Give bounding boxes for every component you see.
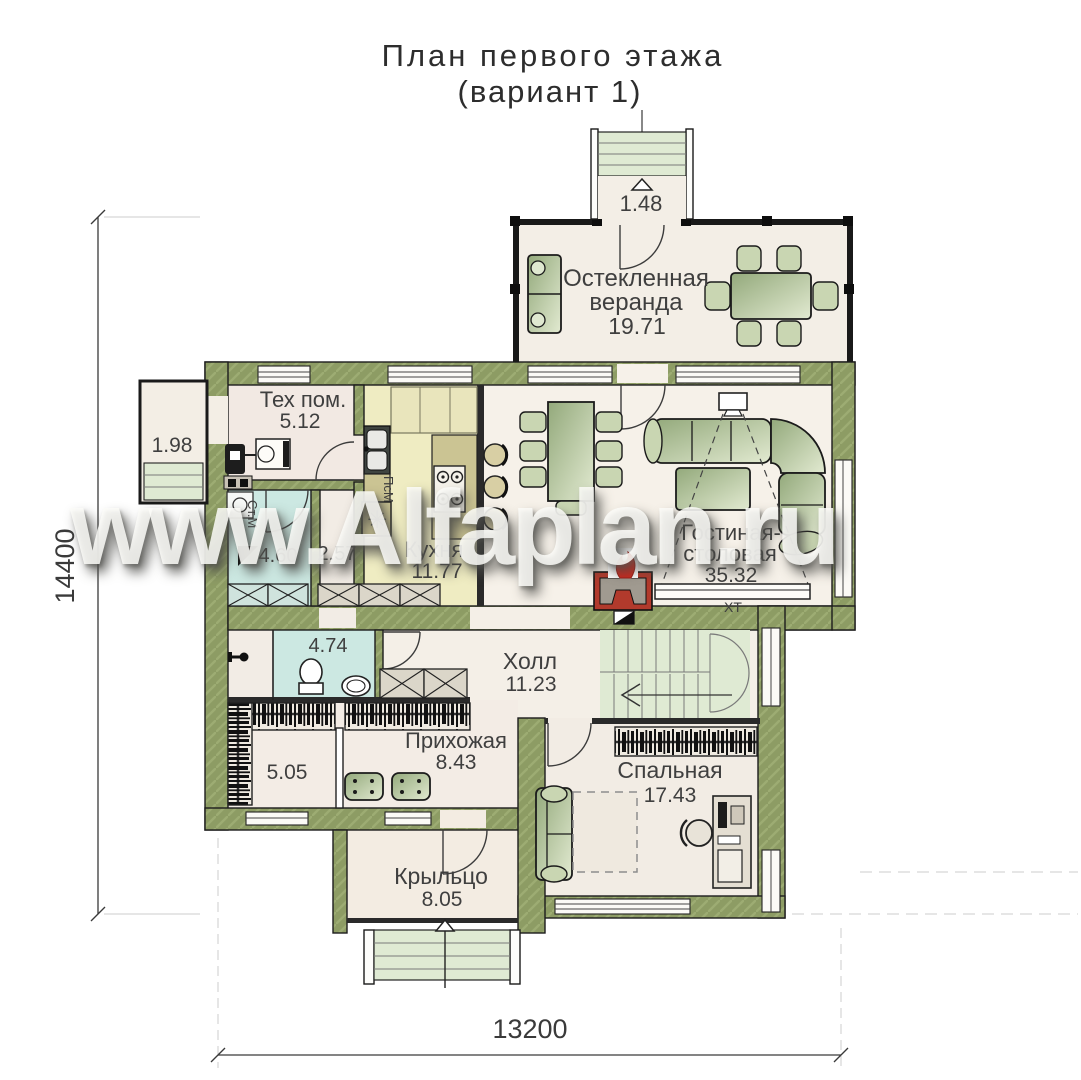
veranda-area-label: 19.71 <box>608 313 666 339</box>
floor-plan-drawing: План первого этажа (вариант 1) 14400 132… <box>0 0 1081 1080</box>
dimension-height-label: 14400 <box>50 528 80 603</box>
title-line2: (вариант 1) <box>458 74 643 109</box>
title-line1: План первого этажа <box>382 38 725 73</box>
coffee-table-symbol <box>676 468 750 510</box>
wc-area-label: 4.74 <box>309 635 348 657</box>
bedroom-name-label: Спальная <box>617 757 722 783</box>
tv-console-label: ХТ <box>724 599 742 615</box>
veranda-name-label-2: веранда <box>589 289 683 316</box>
window-veranda-wall-1 <box>528 366 612 383</box>
wardrobe-xboxes-shower <box>228 584 308 606</box>
floor-plan-page: План первого этажа (вариант 1) 14400 132… <box>0 0 1081 1080</box>
tech-name-label: Тех пом. <box>260 387 346 412</box>
top-steps-area-label: 1.48 <box>620 191 663 216</box>
window-top-2 <box>388 366 472 383</box>
closet-partition <box>336 728 343 808</box>
window-bottom-2 <box>385 812 431 825</box>
closet-area-label: 5.05 <box>267 761 308 784</box>
kitchen-sink-symbol <box>363 426 390 474</box>
kitchen-unit-symbol: ✳ <box>362 502 391 536</box>
wardrobe-xboxes-kitchen <box>318 584 440 606</box>
sink-symbol <box>342 676 370 696</box>
porch-area-label: 8.05 <box>422 888 463 911</box>
porch-steps <box>364 920 520 988</box>
veranda-dining-table-symbol <box>731 273 811 319</box>
dishwasher-symbol: ПсМ <box>364 474 396 503</box>
window-stairs-right <box>762 628 780 706</box>
washer-label: Ст.М <box>245 500 260 528</box>
bed-outline-symbol <box>573 792 637 872</box>
hanger-rail-1 <box>250 703 335 730</box>
dishwasher-label: ПсМ <box>381 476 396 503</box>
kitchen-living-partition <box>477 385 484 606</box>
side-porch: 1.98 <box>140 381 207 503</box>
side-porch-area-label: 1.98 <box>152 434 193 457</box>
staircase <box>600 630 750 718</box>
window-bedroom-right <box>762 850 780 912</box>
porch-name-label: Крыльцо <box>394 863 488 889</box>
hanger-rail-bedroom <box>615 727 757 756</box>
dimension-width: 13200 <box>211 1014 848 1062</box>
kitchen-name-label: Кухня <box>405 537 464 562</box>
living-area-label: 35.32 <box>705 564 758 587</box>
living-name-label-2: столовая <box>683 541 777 566</box>
hanger-rail-2 <box>345 703 470 730</box>
dimension-width-label: 13200 <box>492 1014 567 1044</box>
bar-stools <box>484 444 507 530</box>
dimension-height: 14400 <box>50 210 105 921</box>
window-top-1 <box>258 366 310 383</box>
entry-area-label: 8.43 <box>436 751 477 774</box>
pouf-symbol-1 <box>345 773 383 800</box>
toilet-symbol <box>300 659 322 685</box>
lobby-area-label: 2.57 <box>318 543 357 565</box>
desk-symbol <box>713 796 751 888</box>
tech-area-label: 5.12 <box>280 410 321 433</box>
stove-symbol <box>432 435 477 539</box>
window-bottom-1 <box>246 812 308 825</box>
hall-name-label: Холл <box>503 648 557 674</box>
kitchen-unit-glyph: ✳ <box>367 507 387 534</box>
hall-area-label: 11.23 <box>506 673 557 696</box>
window-veranda-wall-2 <box>676 366 800 383</box>
dining-table-symbol <box>548 402 594 501</box>
entry-name-label: Прихожая <box>405 728 507 753</box>
pouf-symbol-2 <box>392 773 430 800</box>
window-bedroom-bottom <box>555 899 690 914</box>
shower-area-label: 4.60 <box>259 545 298 567</box>
window-living-right <box>835 460 852 597</box>
wardrobe-xboxes-hall <box>380 669 467 698</box>
bedroom-area-label: 17.43 <box>644 784 697 807</box>
kitchen-area-label: 11.77 <box>412 560 463 583</box>
top-steps: 1.48 <box>591 129 693 219</box>
hanger-rail-closet <box>228 703 252 805</box>
veranda-name-label-1: Остекленная <box>563 265 709 292</box>
